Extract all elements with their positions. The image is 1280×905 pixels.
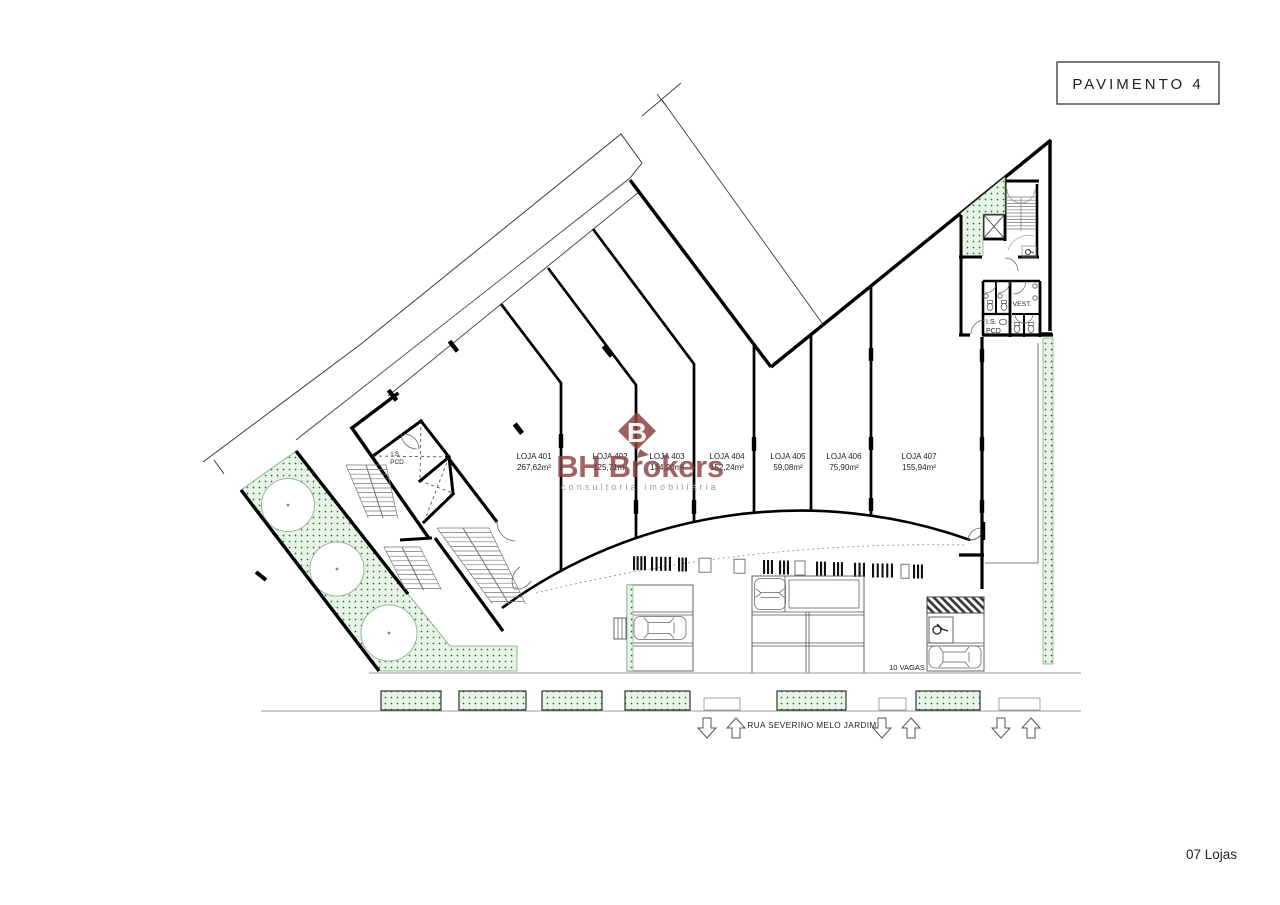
svg-text:RUA SEVERINO MELO JARDIM: RUA SEVERINO MELO JARDIM — [747, 721, 876, 730]
svg-text:VEST.: VEST. — [1013, 301, 1032, 308]
svg-text:LOJA 401: LOJA 401 — [516, 452, 552, 461]
svg-text:PCD: PCD — [390, 459, 404, 466]
svg-text:PAVIMENTO 4: PAVIMENTO 4 — [1072, 76, 1203, 93]
svg-text:LOJA 407: LOJA 407 — [901, 452, 937, 461]
svg-text:PCD: PCD — [986, 328, 1001, 335]
svg-text:155,94m²: 155,94m² — [902, 463, 936, 472]
svg-text:LOJA 405: LOJA 405 — [770, 452, 806, 461]
svg-text:59,08m²: 59,08m² — [773, 463, 803, 472]
svg-text:07 Lojas: 07 Lojas — [1186, 847, 1237, 862]
svg-text:I.S.: I.S. — [391, 451, 401, 458]
svg-text:I.S.: I.S. — [986, 319, 997, 326]
svg-text:BH Brokers: BH Brokers — [556, 449, 724, 484]
svg-text:consultoria imobiliária: consultoria imobiliária — [561, 482, 719, 492]
svg-text:75,90m²: 75,90m² — [829, 463, 859, 472]
svg-text:B: B — [627, 417, 647, 448]
svg-text:10 VAGAS: 10 VAGAS — [889, 663, 925, 672]
svg-text:LOJA 406: LOJA 406 — [826, 452, 862, 461]
svg-text:267,62m²: 267,62m² — [517, 463, 551, 472]
